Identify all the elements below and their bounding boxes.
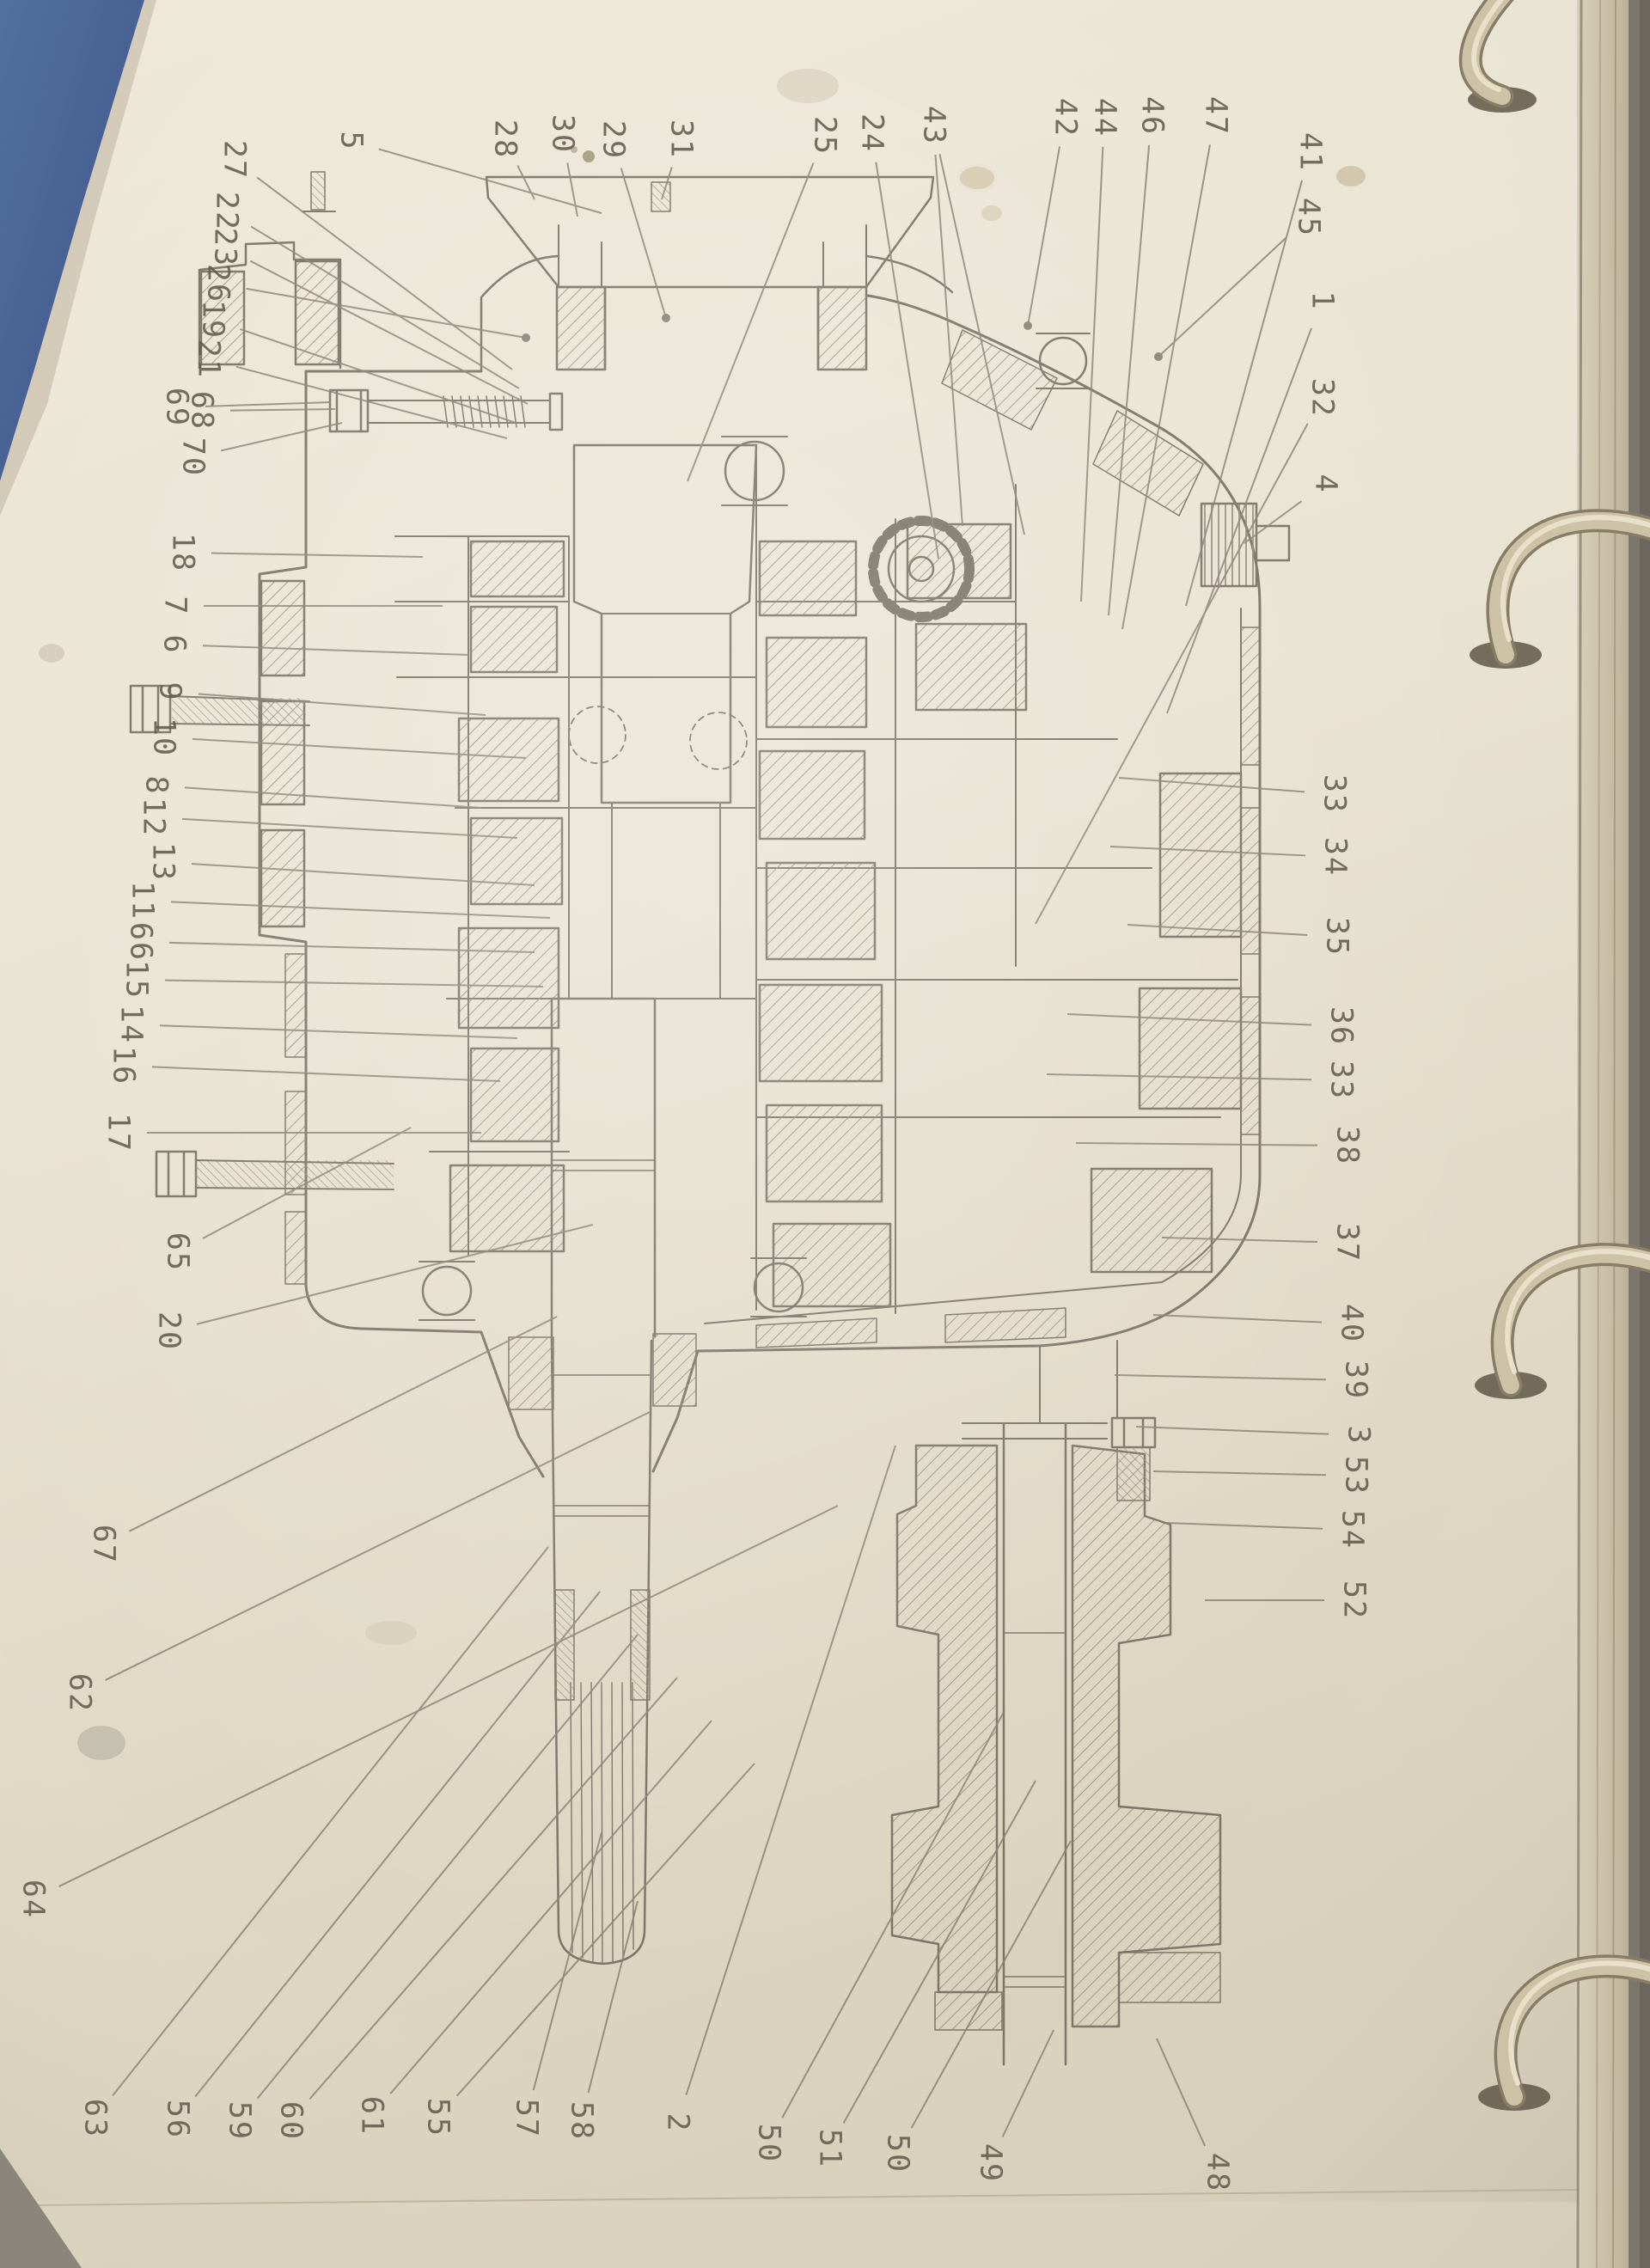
diagram-artwork (0, 0, 1650, 2268)
photo-vignette (0, 0, 1650, 2268)
page-stack-edge (1577, 0, 1650, 2268)
photo-of-binder-page: 2722232619216968705283029312524434244464… (0, 0, 1650, 2268)
